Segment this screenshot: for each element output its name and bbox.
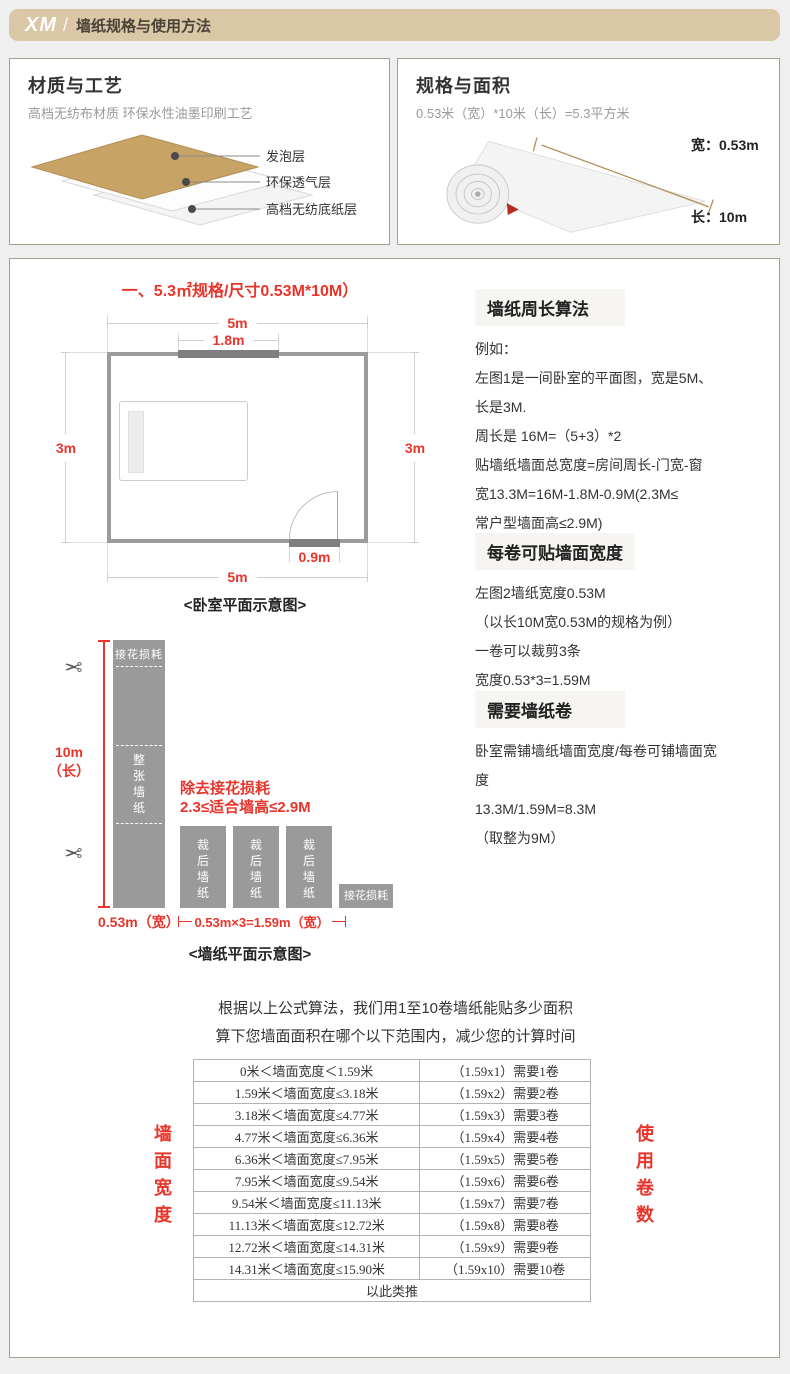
rolls-cell: （1.59x4）需要4卷 xyxy=(420,1126,591,1148)
rolls-cell: （1.59x7）需要7卷 xyxy=(420,1192,591,1214)
layer-label-breathable: 环保透气层 xyxy=(266,175,331,190)
rolls-cell: （1.59x1）需要1卷 xyxy=(420,1060,591,1082)
full-roll-strip: 接花损耗 整张墙纸 xyxy=(113,640,165,908)
door-segment xyxy=(289,539,340,547)
range-cell: 14.31米＜墙面宽度≤15.90米 xyxy=(194,1258,420,1280)
table-footer-row: 以此类推 xyxy=(194,1280,591,1302)
full-strip-label: 整张墙纸 xyxy=(133,752,145,816)
table-row: 11.13米＜墙面宽度≤12.72米（1.59x8）需要8卷 xyxy=(194,1214,591,1236)
cut-strips-row: 裁后墙纸 裁后墙纸 裁后墙纸 xyxy=(180,826,332,908)
dim-left-height: 3m xyxy=(65,352,66,543)
spec-title: 规格与面积 xyxy=(416,72,761,98)
cut-strip: 裁后墙纸 xyxy=(233,826,279,908)
section-rolls-needed: 需要墙纸卷 卧室需铺墙纸墙面宽度/每卷可铺墙面宽 度 13.3M/1.59M=8… xyxy=(475,691,780,853)
rolls-cell: （1.59x5）需要5卷 xyxy=(420,1148,591,1170)
strip-width-label: 0.53m（宽） xyxy=(98,912,180,932)
cut-width-dimension: 0.53m×3=1.59m（宽） xyxy=(178,912,346,931)
rolls-cell: （1.59x10）需要10卷 xyxy=(420,1258,591,1280)
material-panel: 材质与工艺 高档无纺布材质 环保水性油墨印刷工艺 发泡层 环保透气层 高档无纺底… xyxy=(9,58,390,245)
roll-length-label: 长：10m xyxy=(691,207,747,227)
dim-door-width: 0.9m xyxy=(289,557,340,558)
table-intro-line2: 算下您墙面面积在哪个以下范围内，减少您的计算时间 xyxy=(10,1023,781,1051)
section-perimeter: 墙纸周长算法 例如： 左图1是一间卧室的平面图，宽是5M、 长是3M. 周长是 … xyxy=(475,289,780,538)
brand-logo: XM xyxy=(25,14,57,37)
spec-panel: 规格与面积 0.53米（宽）*10米（长）=5.3平方米 宽：0.53m 长：1… xyxy=(397,58,780,245)
table-row: 6.36米＜墙面宽度≤7.95米（1.59x5）需要5卷 xyxy=(194,1148,591,1170)
table-row: 0米＜墙面宽度＜1.59米（1.59x1）需要1卷 xyxy=(194,1060,591,1082)
table-row: 7.95米＜墙面宽度≤9.54米（1.59x6）需要6卷 xyxy=(194,1170,591,1192)
dim-right-height: 3m xyxy=(414,352,415,543)
material-panel-head: 材质与工艺 高档无纺布材质 环保水性油墨印刷工艺 xyxy=(10,59,389,122)
dim-top-width: 5m xyxy=(107,323,368,324)
rolls-lookup-table: 0米＜墙面宽度＜1.59米（1.59x1）需要1卷 1.59米＜墙面宽度≤3.1… xyxy=(193,1059,591,1302)
bedroom-floorplan: 5m 1.8m 3m 3m 0.9m 5m xyxy=(30,301,460,636)
cutting-diagram-caption: <墙纸平面示意图> xyxy=(100,943,400,964)
range-cell: 9.54米＜墙面宽度≤11.13米 xyxy=(194,1192,420,1214)
rolls-cell: （1.59x8）需要8卷 xyxy=(420,1214,591,1236)
roll-width-label: 宽：0.53m xyxy=(691,135,759,155)
floorplan-caption: <卧室平面示意图> xyxy=(30,594,460,615)
table-row: 14.31米＜墙面宽度≤15.90米（1.59x10）需要10卷 xyxy=(194,1258,591,1280)
wallpaper-roll-diagram xyxy=(416,129,716,241)
table-footer-cell: 以此类推 xyxy=(194,1280,591,1302)
material-title: 材质与工艺 xyxy=(28,72,371,98)
table-row: 4.77米＜墙面宽度≤6.36米（1.59x4）需要4卷 xyxy=(194,1126,591,1148)
range-cell: 7.95米＜墙面宽度≤9.54米 xyxy=(194,1170,420,1192)
table-row: 9.54米＜墙面宽度≤11.13米（1.59x7）需要7卷 xyxy=(194,1192,591,1214)
right-axis-label: 使用卷数 xyxy=(634,1121,656,1229)
layer-label-foam: 发泡层 xyxy=(266,149,305,164)
bed-pillow xyxy=(128,411,144,473)
table-row: 12.72米＜墙面宽度≤14.31米（1.59x9）需要9卷 xyxy=(194,1236,591,1258)
range-cell: 0米＜墙面宽度＜1.59米 xyxy=(194,1060,420,1082)
table-intro: 根据以上公式算法，我们用1至10卷墙纸能贴多少面积 算下您墙面面积在哪个以下范围… xyxy=(10,995,781,1051)
page-title: 墙纸规格与使用方法 xyxy=(76,15,211,36)
section-rolls-needed-title: 需要墙纸卷 xyxy=(475,691,625,728)
rolls-cell: （1.59x2）需要2卷 xyxy=(420,1082,591,1104)
wall-height-note: 除去接花损耗 2.3≤适合墙高≤2.9M xyxy=(180,779,311,817)
wallpaper-cutting-diagram: 10m （长） 接花损耗 整张墙纸 ✂ ✂ 除去接花损耗 2.3≤适合墙高≤2.… xyxy=(40,633,470,978)
scissors-icon: ✂ xyxy=(64,655,82,681)
main-panel: 一、5.3㎡规格/尺寸0.53M*10M） 5m 1.8m xyxy=(9,258,780,1358)
spec-size-title: 一、5.3㎡规格/尺寸0.53M*10M） xyxy=(60,277,420,301)
cut-strip: 裁后墙纸 xyxy=(286,826,332,908)
table-row: 1.59米＜墙面宽度≤3.18米（1.59x2）需要2卷 xyxy=(194,1082,591,1104)
window-segment xyxy=(178,350,279,358)
material-layers-diagram: 发泡层 环保透气层 高档无纺底纸层 xyxy=(20,125,382,237)
range-cell: 12.72米＜墙面宽度≤14.31米 xyxy=(194,1236,420,1258)
wallpaper-spec-page: XM / 墙纸规格与使用方法 材质与工艺 高档无纺布材质 环保水性油墨印刷工艺 … xyxy=(0,0,790,1374)
rolls-cell: （1.59x6）需要6卷 xyxy=(420,1170,591,1192)
section-rolls-needed-body: 卧室需铺墙纸墙面宽度/每卷可铺墙面宽 度 13.3M/1.59M=8.3M （取… xyxy=(475,737,780,853)
length-label: 10m （长） xyxy=(40,743,98,781)
spec-subtitle: 0.53米（宽）*10米（长）=5.3平方米 xyxy=(416,103,761,122)
section-per-roll-title: 每卷可贴墙面宽度 xyxy=(475,533,635,570)
table-row: 3.18米＜墙面宽度≤4.77米（1.59x3）需要3卷 xyxy=(194,1104,591,1126)
material-subtitle: 高档无纺布材质 环保水性油墨印刷工艺 xyxy=(28,103,371,122)
range-cell: 11.13米＜墙面宽度≤12.72米 xyxy=(194,1214,420,1236)
waste-bottom-block: 接花损耗 xyxy=(339,884,393,908)
length-dimension-line xyxy=(103,640,105,908)
spec-panel-head: 规格与面积 0.53米（宽）*10米（长）=5.3平方米 xyxy=(398,59,779,122)
dim-window-width: 1.8m xyxy=(178,340,279,341)
rolls-cell: （1.59x9）需要9卷 xyxy=(420,1236,591,1258)
range-cell: 4.77米＜墙面宽度≤6.36米 xyxy=(194,1126,420,1148)
bed xyxy=(119,401,248,481)
dim-bottom-width: 5m xyxy=(107,577,368,578)
section-perimeter-body: 例如： 左图1是一间卧室的平面图，宽是5M、 长是3M. 周长是 16M=（5+… xyxy=(475,335,780,538)
range-cell: 3.18米＜墙面宽度≤4.77米 xyxy=(194,1104,420,1126)
table-intro-line1: 根据以上公式算法，我们用1至10卷墙纸能贴多少面积 xyxy=(10,995,781,1023)
section-per-roll: 每卷可贴墙面宽度 左图2墙纸宽度0.53M （以长10M宽0.53M的规格为例）… xyxy=(475,533,780,695)
left-axis-label: 墙面宽度 xyxy=(152,1121,174,1229)
layer-label-base: 高档无纺底纸层 xyxy=(266,202,357,217)
rolls-cell: （1.59x3）需要3卷 xyxy=(420,1104,591,1126)
scissors-icon: ✂ xyxy=(64,841,82,867)
section-perimeter-title: 墙纸周长算法 xyxy=(475,289,625,326)
range-cell: 6.36米＜墙面宽度≤7.95米 xyxy=(194,1148,420,1170)
section-per-roll-body: 左图2墙纸宽度0.53M （以长10M宽0.53M的规格为例） 一卷可以裁剪3条… xyxy=(475,579,780,695)
section-header-bar: XM / 墙纸规格与使用方法 xyxy=(9,9,780,41)
waste-top-label: 接花损耗 xyxy=(113,646,165,662)
range-cell: 1.59米＜墙面宽度≤3.18米 xyxy=(194,1082,420,1104)
header-separator: / xyxy=(63,15,68,36)
cut-strip: 裁后墙纸 xyxy=(180,826,226,908)
